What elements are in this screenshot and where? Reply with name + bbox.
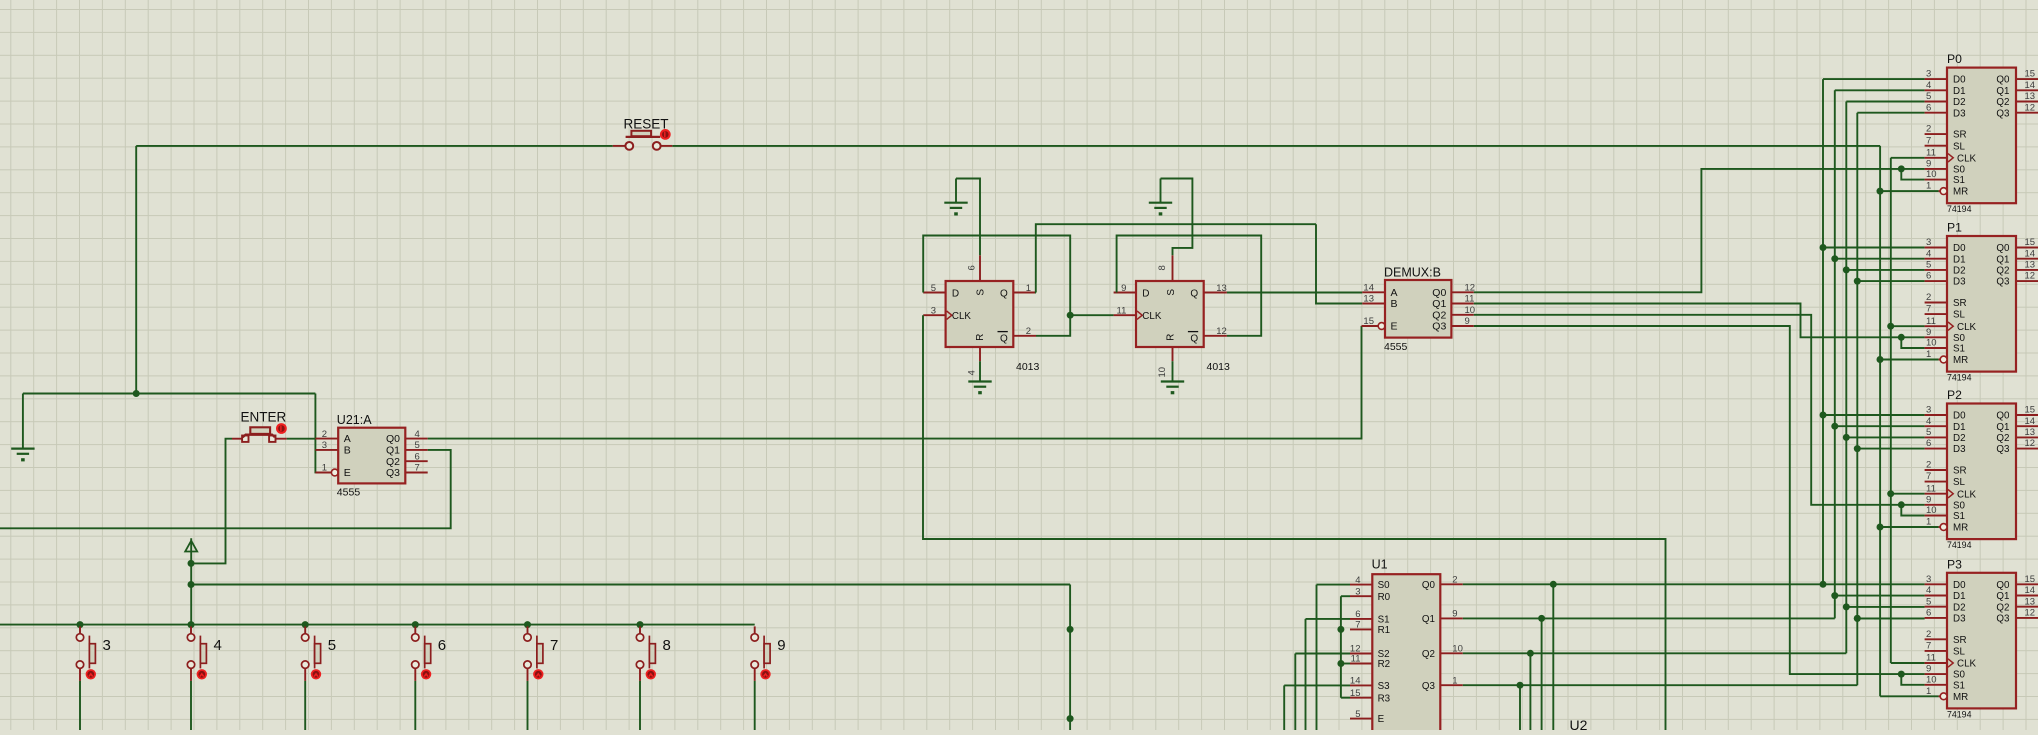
svg-text:11: 11 [1926, 147, 1936, 158]
svg-text:14: 14 [1363, 283, 1374, 294]
svg-text:1: 1 [1926, 517, 1931, 528]
svg-text:11: 11 [1465, 294, 1475, 305]
svg-text:15: 15 [2025, 237, 2036, 248]
svg-text:14: 14 [1350, 676, 1361, 687]
svg-text:Q2: Q2 [1422, 649, 1435, 660]
svg-text:1: 1 [1926, 349, 1931, 360]
svg-text:14: 14 [2025, 248, 2036, 259]
svg-text:1: 1 [1926, 686, 1931, 697]
svg-text:Q0: Q0 [1996, 243, 2010, 254]
svg-text:P0: P0 [1947, 52, 1962, 66]
svg-text:R3: R3 [1378, 693, 1391, 704]
svg-text:13: 13 [2025, 427, 2036, 438]
svg-text:10: 10 [1926, 169, 1937, 180]
svg-text:11: 11 [1117, 306, 1127, 317]
svg-text:13: 13 [1363, 294, 1374, 305]
svg-text:S1: S1 [1953, 511, 1965, 522]
svg-text:4: 4 [214, 637, 222, 654]
svg-text:SL: SL [1953, 647, 1966, 658]
svg-text:Q1: Q1 [386, 445, 400, 457]
svg-text:D2: D2 [1953, 97, 1966, 108]
svg-text:Q3: Q3 [1422, 681, 1436, 692]
svg-text:Q2: Q2 [1996, 602, 2009, 613]
svg-text:14: 14 [2025, 416, 2036, 427]
svg-text:D1: D1 [1953, 254, 1966, 265]
svg-text:D1: D1 [1953, 86, 1966, 97]
svg-text:S1: S1 [1953, 175, 1965, 186]
svg-text:Q0: Q0 [1996, 580, 2010, 591]
svg-text:7: 7 [1926, 471, 1931, 482]
svg-text:74194: 74194 [1947, 709, 1972, 719]
svg-text:D3: D3 [1953, 444, 1966, 455]
svg-text:B: B [344, 445, 351, 457]
svg-text:Q1: Q1 [1432, 298, 1446, 310]
svg-text:9: 9 [1926, 494, 1931, 505]
svg-text:R2: R2 [1378, 659, 1391, 670]
svg-text:6: 6 [438, 637, 446, 654]
svg-text:CLK: CLK [952, 311, 972, 322]
svg-text:R: R [975, 334, 986, 341]
svg-text:U1: U1 [1372, 558, 1388, 572]
svg-text:Q3: Q3 [1432, 321, 1446, 333]
svg-text:13: 13 [2025, 596, 2036, 607]
svg-text:10: 10 [1452, 644, 1463, 655]
svg-text:4: 4 [1355, 575, 1360, 586]
svg-text:Q0: Q0 [1996, 411, 2010, 422]
svg-text:D3: D3 [1953, 108, 1966, 119]
svg-text:3: 3 [322, 440, 327, 451]
svg-text:D2: D2 [1953, 602, 1966, 613]
svg-text:13: 13 [1216, 283, 1227, 294]
svg-text:CLK: CLK [1142, 311, 1162, 322]
svg-text:D2: D2 [1953, 266, 1966, 277]
svg-text:13: 13 [2025, 91, 2036, 102]
svg-text:S1: S1 [1953, 680, 1965, 691]
svg-text:2: 2 [1452, 575, 1457, 586]
svg-text:D2: D2 [1953, 433, 1966, 444]
svg-text:SL: SL [1953, 141, 1966, 152]
svg-text:5: 5 [1355, 709, 1360, 720]
svg-text:DEMUX:B: DEMUX:B [1384, 266, 1441, 280]
svg-text:4555: 4555 [1384, 341, 1408, 353]
svg-text:1: 1 [322, 463, 327, 474]
svg-text:15: 15 [2025, 574, 2036, 585]
svg-text:3: 3 [1926, 69, 1931, 80]
svg-text:74194: 74194 [1947, 540, 1972, 550]
svg-text:R0: R0 [1378, 592, 1391, 603]
svg-text:6: 6 [1355, 609, 1360, 620]
svg-text:Q0: Q0 [1996, 75, 2010, 86]
svg-text:12: 12 [1465, 283, 1476, 294]
svg-text:4: 4 [1926, 248, 1931, 259]
svg-text:MR: MR [1953, 523, 1968, 534]
svg-text:6: 6 [1926, 608, 1931, 619]
svg-text:9: 9 [1121, 283, 1126, 294]
svg-text:S1: S1 [1953, 344, 1965, 355]
svg-text:CLK: CLK [1957, 659, 1977, 670]
svg-text:10: 10 [1157, 367, 1168, 378]
svg-text:A: A [1391, 287, 1398, 299]
svg-text:D: D [1142, 288, 1149, 299]
svg-text:11: 11 [1926, 316, 1936, 327]
svg-text:7: 7 [1355, 620, 1360, 631]
svg-text:B: B [1391, 298, 1398, 310]
svg-text:Q1: Q1 [1996, 591, 2009, 602]
svg-text:7: 7 [1926, 641, 1931, 652]
svg-text:5: 5 [328, 637, 336, 654]
svg-text:4: 4 [1926, 585, 1931, 596]
svg-text:Q3: Q3 [1996, 444, 2010, 455]
svg-text:R1: R1 [1378, 625, 1391, 636]
svg-text:4013: 4013 [1207, 361, 1231, 373]
svg-text:9: 9 [1926, 327, 1931, 338]
svg-text:10: 10 [1926, 505, 1937, 516]
svg-text:MR: MR [1953, 692, 1968, 703]
svg-text:CLK: CLK [1957, 322, 1977, 333]
svg-text:4: 4 [1926, 416, 1931, 427]
svg-text:9: 9 [1465, 316, 1470, 327]
svg-text:S0: S0 [1953, 333, 1966, 344]
svg-text:15: 15 [2025, 69, 2036, 80]
svg-text:MR: MR [1953, 355, 1968, 366]
svg-text:Q3: Q3 [1996, 614, 2010, 625]
svg-text:D: D [952, 288, 959, 299]
svg-text:S0: S0 [1953, 500, 1966, 511]
svg-text:5: 5 [931, 283, 936, 294]
svg-text:SL: SL [1953, 310, 1966, 321]
svg-text:CLK: CLK [1957, 153, 1977, 164]
svg-text:3: 3 [1926, 405, 1931, 416]
svg-text:S3: S3 [1378, 681, 1391, 692]
svg-text:Q2: Q2 [1996, 266, 2009, 277]
svg-text:1: 1 [1452, 675, 1457, 686]
svg-text:14: 14 [2025, 80, 2036, 91]
svg-text:4: 4 [415, 429, 420, 440]
svg-text:D0: D0 [1953, 580, 1966, 591]
svg-text:4: 4 [1926, 80, 1931, 91]
svg-text:SR: SR [1953, 635, 1967, 646]
svg-text:Q3: Q3 [386, 467, 400, 479]
svg-text:D0: D0 [1953, 75, 1966, 86]
svg-text:D3: D3 [1953, 614, 1966, 625]
svg-text:Q0: Q0 [386, 433, 400, 445]
svg-text:3: 3 [1355, 586, 1360, 597]
svg-text:13: 13 [2025, 260, 2036, 271]
svg-text:9: 9 [1926, 159, 1931, 170]
svg-text:10: 10 [1465, 305, 1476, 316]
svg-text:15: 15 [2025, 405, 2036, 416]
svg-text:Q3: Q3 [1996, 108, 2010, 119]
svg-text:MR: MR [1953, 187, 1968, 198]
svg-text:10: 10 [1926, 674, 1937, 685]
svg-text:5: 5 [1926, 260, 1931, 271]
svg-text:12: 12 [2025, 102, 2036, 113]
svg-text:6: 6 [1926, 271, 1931, 282]
svg-text:Q3: Q3 [1996, 277, 2010, 288]
svg-text:4013: 4013 [1016, 361, 1040, 373]
svg-text:S1: S1 [1378, 615, 1390, 626]
svg-text:A: A [344, 433, 351, 445]
svg-text:4: 4 [967, 370, 978, 375]
svg-text:P1: P1 [1947, 221, 1962, 235]
svg-text:11: 11 [1351, 654, 1361, 665]
svg-text:S0: S0 [1378, 580, 1391, 591]
svg-text:Q1: Q1 [1996, 422, 2009, 433]
svg-text:6: 6 [1926, 438, 1931, 449]
svg-text:8: 8 [1157, 265, 1168, 270]
svg-text:12: 12 [2025, 271, 2036, 282]
svg-text:P2: P2 [1947, 388, 1962, 402]
svg-text:12: 12 [2025, 608, 2036, 619]
svg-text:Q2: Q2 [1996, 433, 2009, 444]
svg-text:7: 7 [415, 463, 420, 474]
svg-text:Q: Q [1000, 288, 1008, 299]
svg-text:P3: P3 [1947, 557, 1962, 571]
svg-text:5: 5 [1926, 427, 1931, 438]
svg-text:Q1: Q1 [1996, 86, 2009, 97]
svg-text:2: 2 [1926, 292, 1931, 303]
svg-text:3: 3 [931, 306, 936, 317]
svg-text:9: 9 [1926, 664, 1931, 675]
svg-text:SL: SL [1953, 477, 1966, 488]
svg-text:14: 14 [2025, 585, 2036, 596]
svg-text:ENTER: ENTER [241, 410, 287, 425]
svg-text:Q: Q [1190, 333, 1198, 344]
svg-text:D3: D3 [1953, 277, 1966, 288]
svg-text:Q0: Q0 [1432, 287, 1446, 299]
svg-text:12: 12 [1216, 326, 1227, 337]
svg-text:1: 1 [1026, 283, 1031, 294]
svg-text:SR: SR [1953, 466, 1967, 477]
svg-text:15: 15 [1350, 688, 1361, 699]
svg-text:SR: SR [1953, 298, 1967, 309]
svg-text:11: 11 [1926, 483, 1936, 494]
svg-text:Q: Q [1190, 288, 1198, 299]
svg-text:7: 7 [1926, 135, 1931, 146]
svg-text:7: 7 [550, 637, 558, 654]
svg-text:SR: SR [1953, 130, 1967, 141]
svg-text:R: R [1165, 334, 1176, 341]
svg-text:2: 2 [1926, 124, 1931, 135]
svg-text:5: 5 [415, 440, 420, 451]
svg-text:RESET: RESET [624, 117, 669, 132]
svg-text:S0: S0 [1953, 670, 1966, 681]
svg-text:10: 10 [1926, 338, 1937, 349]
svg-text:CLK: CLK [1957, 489, 1977, 500]
svg-text:2: 2 [1926, 629, 1931, 640]
svg-text:Q2: Q2 [1432, 309, 1446, 321]
svg-text:2: 2 [1926, 460, 1931, 471]
svg-text:1: 1 [1926, 181, 1931, 192]
svg-text:D0: D0 [1953, 411, 1966, 422]
svg-text:5: 5 [1926, 596, 1931, 607]
svg-text:Q2: Q2 [386, 456, 400, 468]
svg-text:2: 2 [1026, 326, 1031, 337]
svg-text:3: 3 [103, 637, 111, 654]
svg-text:U2: U2 [1570, 717, 1588, 730]
svg-text:D1: D1 [1953, 422, 1966, 433]
svg-text:11: 11 [1926, 653, 1936, 664]
svg-text:12: 12 [2025, 438, 2036, 449]
svg-text:9: 9 [777, 637, 785, 654]
svg-text:S0: S0 [1953, 165, 1966, 176]
svg-text:2: 2 [322, 429, 327, 440]
svg-text:3: 3 [1926, 574, 1931, 585]
svg-text:3: 3 [1926, 237, 1931, 248]
svg-text:D0: D0 [1953, 243, 1966, 254]
svg-text:74194: 74194 [1947, 373, 1972, 383]
svg-text:U21:A: U21:A [337, 413, 372, 427]
svg-text:8: 8 [663, 637, 671, 654]
svg-text:Q1: Q1 [1422, 614, 1435, 625]
svg-text:7: 7 [1926, 304, 1931, 315]
svg-text:D1: D1 [1953, 591, 1966, 602]
svg-text:Q2: Q2 [1996, 97, 2009, 108]
svg-text:S: S [1166, 289, 1177, 296]
svg-text:Q1: Q1 [1996, 254, 2009, 265]
svg-text:6: 6 [1926, 102, 1931, 113]
svg-text:4555: 4555 [337, 487, 361, 499]
svg-text:5: 5 [1926, 91, 1931, 102]
svg-text:E: E [344, 467, 351, 479]
svg-text:9: 9 [1452, 609, 1457, 620]
svg-text:E: E [1378, 714, 1385, 725]
svg-text:E: E [1391, 321, 1398, 333]
svg-text:74194: 74194 [1947, 204, 1972, 214]
svg-text:Q0: Q0 [1422, 580, 1436, 591]
svg-text:S: S [976, 289, 987, 296]
svg-text:Q: Q [1000, 333, 1008, 344]
svg-text:6: 6 [967, 265, 978, 270]
svg-text:6: 6 [415, 451, 420, 462]
